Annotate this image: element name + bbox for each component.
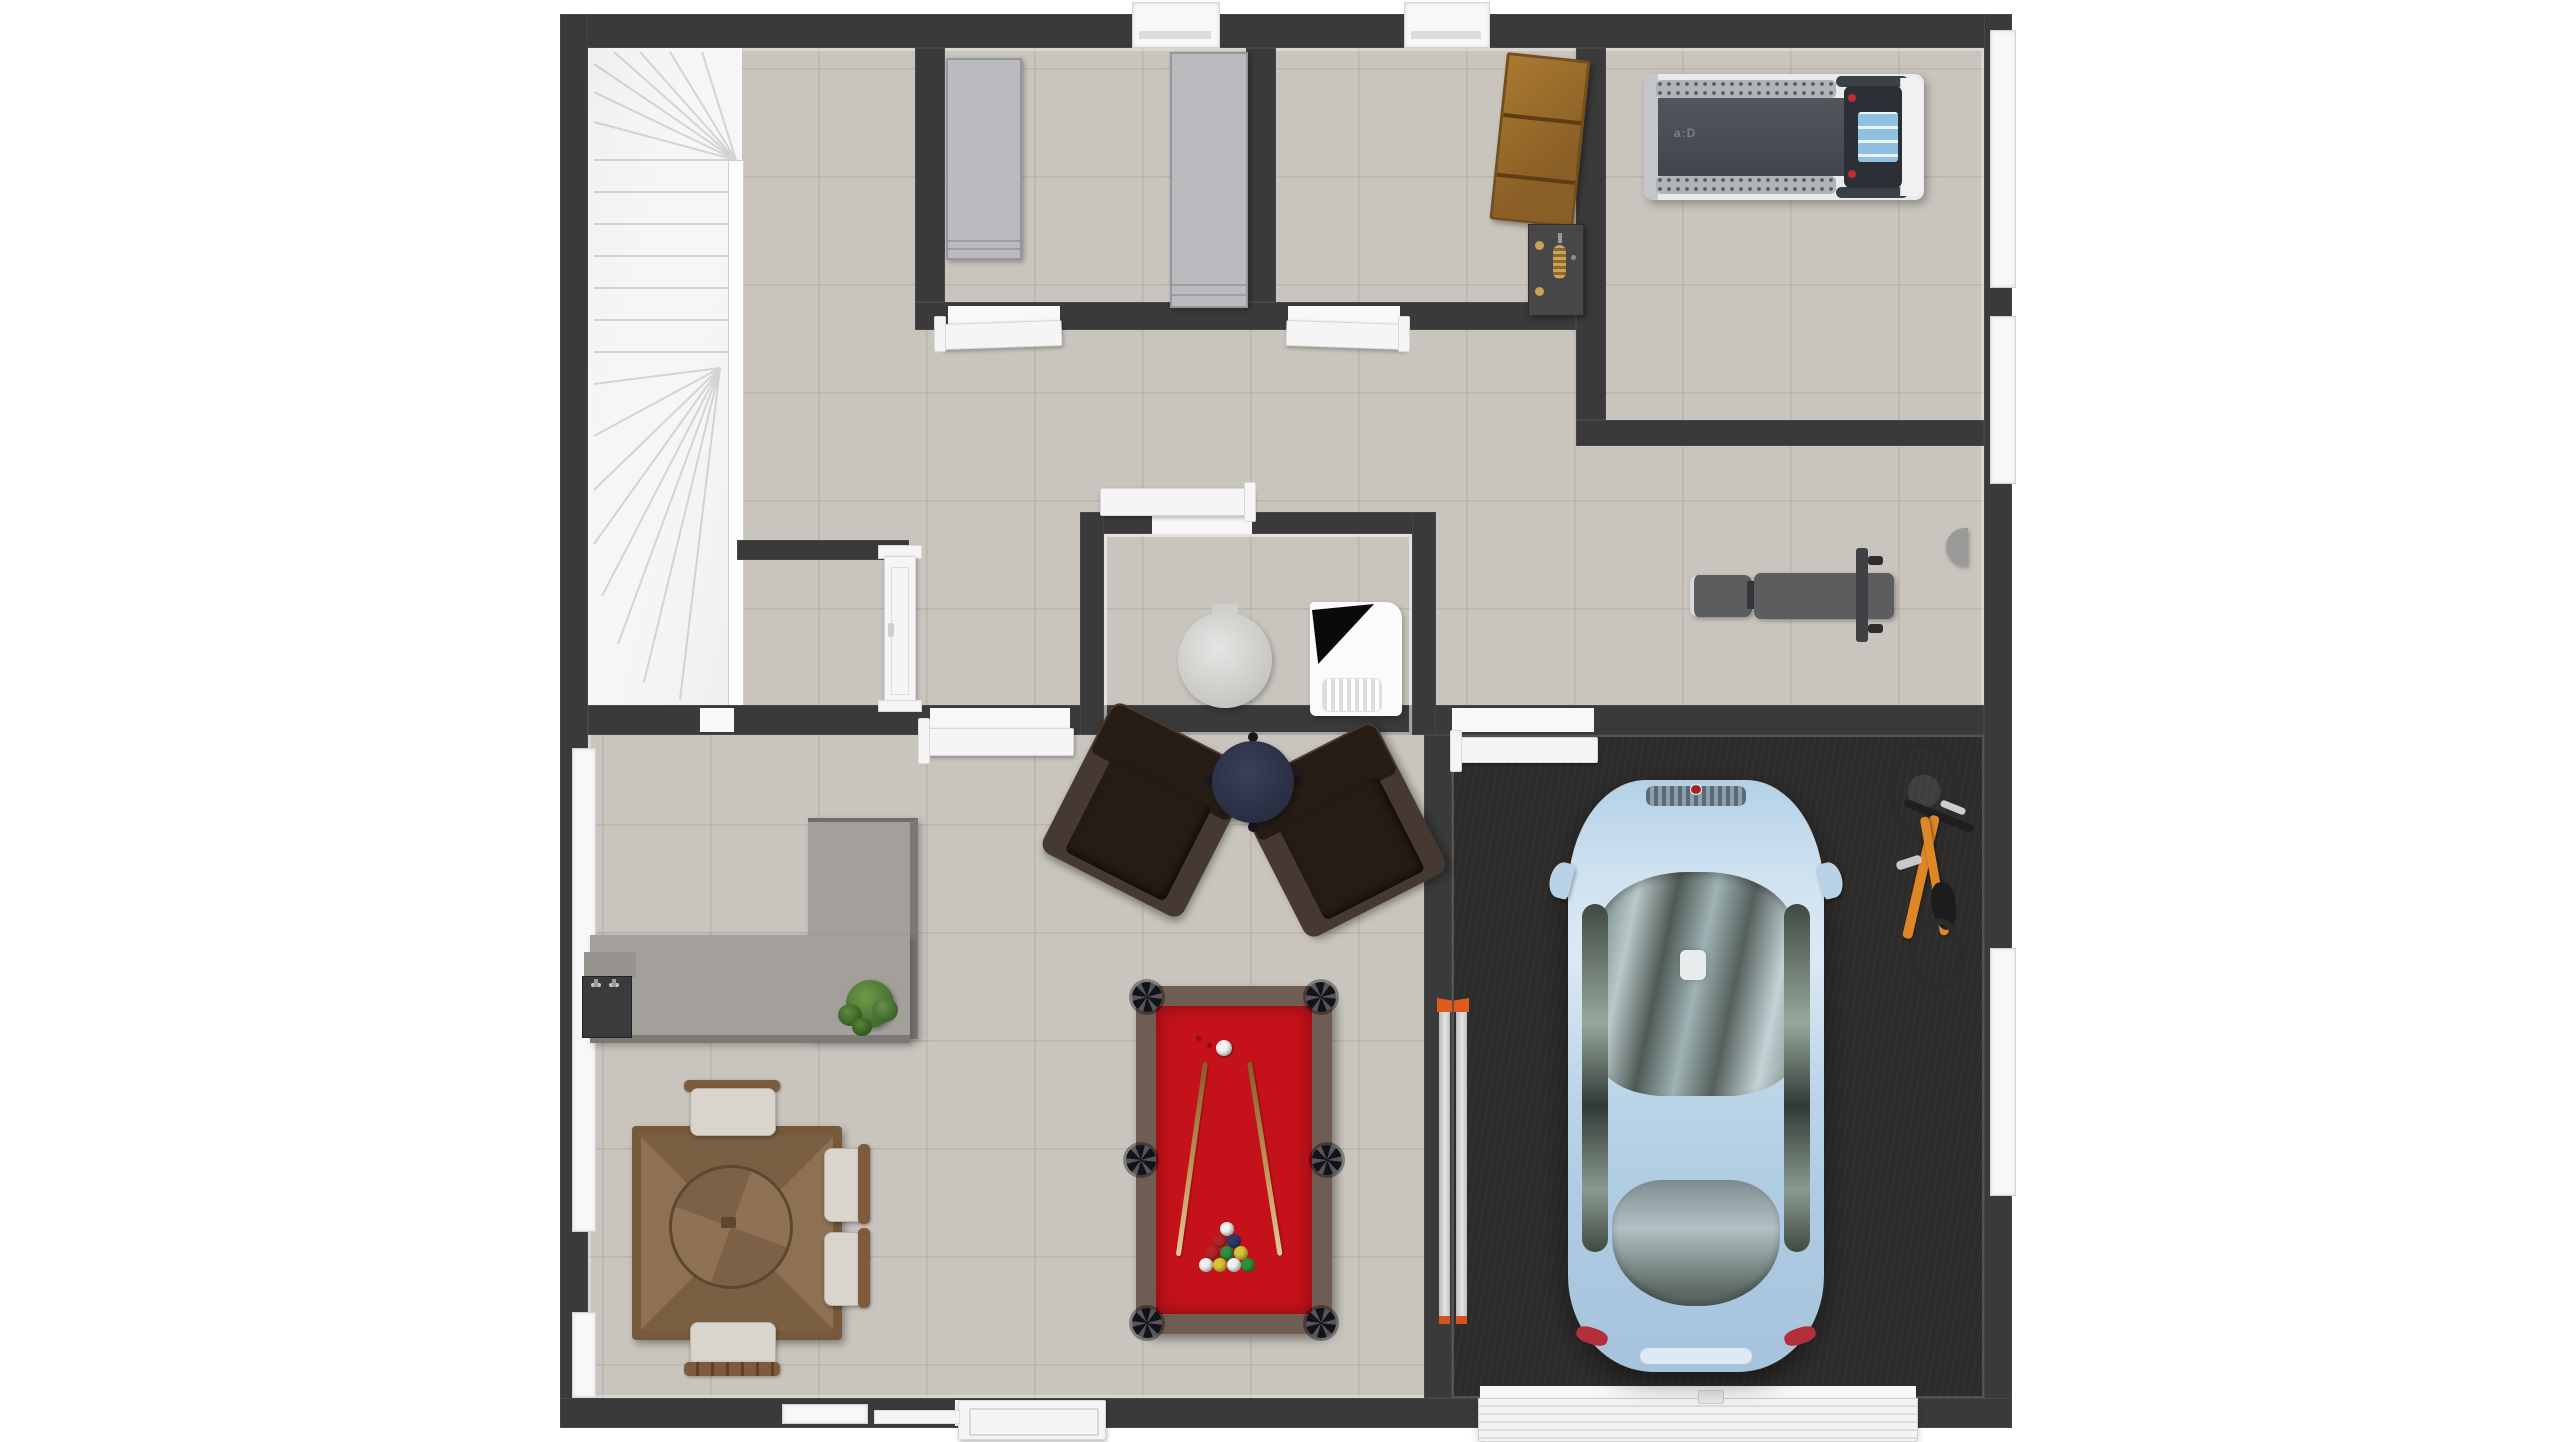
side-table-top — [1212, 741, 1294, 823]
car-side-glass-right — [1784, 904, 1810, 1252]
wall-closet-divider — [1246, 48, 1276, 302]
dining-chair-bottom — [684, 1320, 780, 1378]
ladder-foot — [1439, 1316, 1450, 1324]
car-emblem — [1690, 784, 1702, 795]
potted-plant — [840, 974, 900, 1038]
billiard-ball — [1227, 1258, 1241, 1272]
dining-chair-right-1 — [824, 1144, 872, 1224]
shelf-board — [1503, 113, 1581, 125]
cue-ball — [1216, 1040, 1232, 1056]
door-sill — [874, 1410, 960, 1424]
ladder-tip — [1437, 998, 1452, 1012]
door-hinge — [1450, 730, 1462, 772]
cabinet-seam — [1172, 284, 1246, 286]
cabinet-seam — [948, 248, 1020, 250]
window-right-1 — [1990, 30, 2016, 288]
interior-door-closet-a — [942, 320, 1063, 350]
faucet-stem — [594, 979, 598, 987]
treadmill: a:D — [1644, 74, 1924, 200]
side-table — [1204, 732, 1302, 832]
treadmill-logo: a:D — [1674, 126, 1696, 140]
weight-bench — [1690, 548, 1890, 644]
wall-powder-left — [1080, 512, 1104, 735]
stair-side-wall — [728, 160, 744, 709]
sink-backsplash — [584, 952, 636, 978]
staircase-steps — [588, 48, 742, 705]
ladder-foot — [1456, 1316, 1467, 1324]
door-hinge — [934, 316, 946, 352]
treadmill-handle-bottom — [1836, 187, 1908, 198]
felt-spot — [1196, 1036, 1201, 1041]
threshold-garage — [1452, 708, 1594, 732]
treadmill-screen — [1858, 112, 1898, 162]
window-bottom — [782, 1404, 868, 1424]
floor-plan-canvas: a:D — [0, 0, 2560, 1440]
wall-powder-right — [1412, 512, 1436, 735]
chair-back — [858, 1144, 870, 1224]
treadmill-console-back — [1900, 78, 1923, 196]
utility-unit-opening — [1312, 604, 1374, 664]
window-ledge — [1139, 31, 1211, 39]
treadmill-button-red — [1848, 94, 1856, 102]
entry-door — [958, 1400, 1106, 1440]
chair-seat — [690, 1088, 776, 1136]
ladder-rail — [1439, 1004, 1450, 1320]
door-panel-inset — [969, 1408, 1099, 1436]
garage-door — [1478, 1398, 1918, 1442]
treadmill-button-red — [1848, 170, 1856, 178]
treadmill-rail-top — [1656, 80, 1836, 98]
pool-pocket — [1306, 982, 1336, 1012]
interior-door-closet-b — [1286, 320, 1407, 350]
table-leg — [1248, 822, 1258, 832]
billiard-ball — [1213, 1258, 1227, 1272]
bench-cross-bar — [1856, 548, 1868, 642]
wall-gym-bottom — [1576, 420, 1984, 446]
utility-unit-vent — [1322, 678, 1382, 712]
window-top-1 — [1132, 2, 1220, 48]
pool-pocket — [1132, 982, 1162, 1012]
understair-closet-door — [884, 556, 916, 706]
ladder — [1437, 998, 1471, 1328]
door-hinge — [1244, 482, 1256, 522]
car-cabin-detail — [1680, 950, 1706, 980]
wall-outer-top — [560, 14, 2012, 48]
tool-rack — [1528, 224, 1584, 316]
bicycle — [1880, 730, 1972, 982]
pool-pocket — [1312, 1145, 1342, 1175]
car-rear-window — [1612, 1180, 1780, 1306]
cabinet-seam — [1172, 294, 1246, 296]
car — [1568, 780, 1824, 1372]
interior-door-recroom — [926, 728, 1074, 756]
toilet-tank-notch — [1212, 604, 1238, 614]
felt-spot — [1207, 1043, 1212, 1048]
dining-chair-top — [684, 1080, 780, 1138]
car-windshield — [1598, 872, 1794, 1096]
pool-pocket — [1126, 1145, 1156, 1175]
tall-storage-cabinet — [1170, 52, 1248, 308]
pool-pocket — [1306, 1308, 1336, 1338]
threshold-stairs — [700, 708, 734, 732]
staircase — [588, 48, 742, 705]
chair-back — [858, 1228, 870, 1308]
counter-sink — [582, 976, 632, 1038]
pool-pocket — [1132, 1308, 1162, 1338]
rack-hook — [1558, 233, 1562, 243]
door-hinge — [1398, 316, 1410, 352]
plant-foliage — [852, 1018, 872, 1036]
bench-head-pad — [1690, 575, 1752, 617]
window-right-2 — [1990, 316, 2016, 484]
interior-door-garage — [1458, 737, 1598, 763]
table-center-latch — [721, 1217, 736, 1228]
rack-knob — [1535, 287, 1544, 296]
rack-ribbed-item — [1553, 245, 1566, 279]
wood-shelf-unit — [1489, 52, 1590, 228]
window-right-3 — [1990, 948, 2016, 1196]
door-handle — [888, 623, 894, 637]
ladder-tip — [1454, 998, 1469, 1012]
plant-foliage — [872, 998, 898, 1022]
utility-unit — [1310, 602, 1402, 716]
rack-dot — [1571, 255, 1576, 260]
ladder-rail — [1456, 1004, 1467, 1320]
window-ledge — [1411, 31, 1481, 39]
interior-door-powder — [1100, 488, 1254, 516]
cabinet-seam — [948, 240, 1020, 242]
faucet-stem — [612, 979, 616, 987]
rack-knob — [1535, 241, 1544, 250]
car-side-glass-left — [1582, 904, 1608, 1252]
bench-main-pad — [1754, 573, 1894, 619]
dining-table — [632, 1126, 842, 1340]
bike-rear-wheel — [1910, 918, 1964, 992]
chair-back — [684, 1362, 780, 1376]
door-hinge — [918, 718, 930, 764]
car-rear-bumper — [1640, 1348, 1752, 1364]
window-left-2 — [572, 1312, 596, 1398]
wardrobe-cabinet — [946, 58, 1022, 260]
treadmill-console — [1844, 86, 1902, 188]
billiard-ball — [1241, 1258, 1255, 1272]
racked-balls — [1195, 1222, 1265, 1284]
window-top-2 — [1404, 2, 1490, 48]
dining-chair-right-2 — [824, 1228, 872, 1308]
garage-door-handle — [1698, 1390, 1724, 1404]
billiard-ball — [1199, 1258, 1213, 1272]
shelf-board — [1497, 173, 1575, 185]
wall-closet-left — [915, 48, 945, 302]
bench-weight-peg — [1868, 624, 1883, 633]
understair-door-frame-bottom — [878, 700, 922, 712]
treadmill-rail-bottom — [1656, 176, 1836, 194]
toilet — [1178, 612, 1272, 708]
bench-weight-peg — [1868, 556, 1883, 565]
